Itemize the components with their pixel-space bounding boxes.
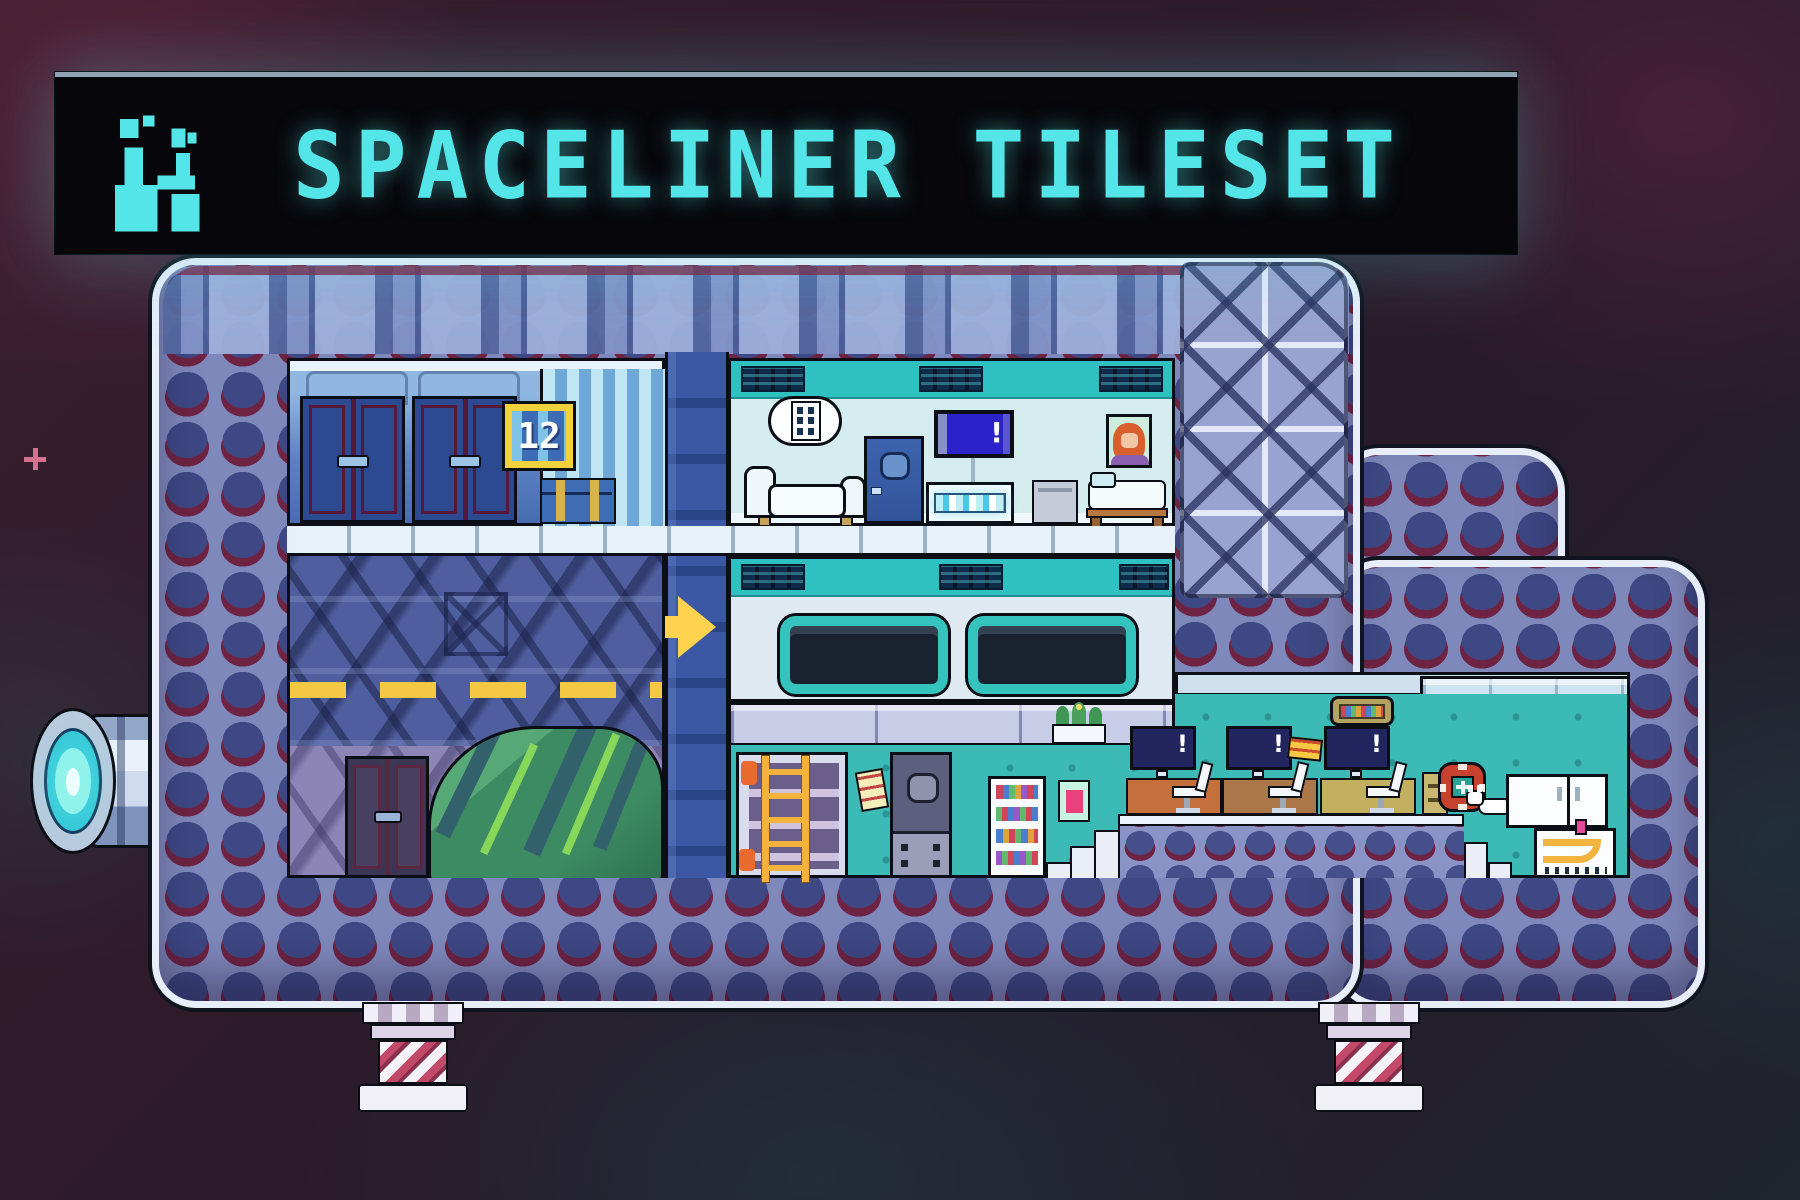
bed-pillow: [1090, 472, 1116, 488]
x-plate: [444, 592, 508, 656]
pixel-factory-rocket-icon: [101, 96, 251, 236]
corridor-window: [968, 616, 1136, 694]
landing-leg: [1308, 1002, 1430, 1116]
monitor: !: [1130, 726, 1196, 770]
hull-top-bracket-band: [163, 266, 1349, 354]
cargo-door-latch: [374, 811, 402, 823]
ceiling-vent: [741, 366, 805, 392]
drink-shelf: [926, 482, 1014, 524]
tv-screen: !: [934, 410, 1014, 458]
raised-platform-edge: [1118, 814, 1464, 826]
fridge: [1506, 774, 1608, 828]
monitor: !: [1324, 726, 1390, 770]
sparkle-plus: [24, 448, 46, 470]
monitor-alert-text: !: [1273, 730, 1284, 758]
title-banner: SPACELINER TILESET: [55, 72, 1517, 254]
couch: [744, 466, 868, 524]
landing-leg: [352, 1002, 474, 1116]
leg-foot: [1314, 1084, 1424, 1112]
locker-handle: [449, 455, 481, 468]
ceiling-vent: [919, 366, 983, 392]
tv-mount: [971, 458, 975, 482]
poster: [1058, 780, 1090, 822]
platform-step: [1488, 862, 1512, 878]
tv-alert-text: !: [990, 416, 1003, 449]
door-number-sign: 12: [505, 404, 573, 468]
leg-spring-coil: [378, 1040, 448, 1084]
locker-doors: [412, 396, 517, 523]
workstation: !: [1222, 722, 1322, 815]
ceiling-vent: [1099, 366, 1163, 392]
storage-rack: [736, 752, 848, 878]
orange-pipe: [741, 761, 757, 785]
deck-floor-band: [287, 526, 1175, 556]
bed: [1086, 470, 1170, 524]
leg-foot: [358, 1084, 468, 1112]
yellow-pipe: [1543, 839, 1595, 846]
cargo-double-door: [345, 756, 429, 878]
locker-doors: [300, 396, 405, 523]
title-text: SPACELINER TILESET: [293, 112, 1405, 220]
workstation: !: [1126, 722, 1226, 815]
ceiling-vent: [939, 564, 1003, 590]
monitor: !: [1226, 726, 1292, 770]
portrait-face: [1121, 433, 1138, 448]
ladder: [761, 755, 809, 881]
stairs-step: [1094, 830, 1120, 878]
orange-pipe: [739, 849, 755, 871]
bookshelf: [988, 776, 1046, 878]
nightstand: [1032, 480, 1078, 524]
workshop-door: [890, 752, 952, 878]
tileset-promo-image: 12 !: [0, 0, 1800, 1200]
wall-bookshelf: [1330, 696, 1394, 726]
platform-step: [1464, 842, 1488, 878]
portrait-shirt: [1111, 455, 1149, 468]
corridor-window: [780, 616, 948, 694]
raised-platform: [1118, 826, 1464, 878]
portrait: [1106, 414, 1152, 468]
workstation: !: [1320, 722, 1420, 815]
engine-nozzle-core: [66, 768, 80, 796]
stairs-step: [1070, 846, 1096, 878]
porthole-window: [880, 452, 910, 480]
ticket: [1287, 736, 1323, 761]
porthole-window: [907, 773, 939, 803]
wall-control-lamp: [768, 396, 842, 446]
hazard-stripe: [290, 682, 662, 698]
locker-handle: [337, 455, 369, 468]
pink-valve: [1575, 819, 1587, 835]
door-handle: [871, 487, 882, 495]
ceiling-vent: [1119, 564, 1169, 590]
stairs-step: [1046, 862, 1072, 878]
cargo-trunk: [540, 478, 616, 524]
planter: [1050, 702, 1110, 748]
cargo-upper-wall: [287, 556, 665, 746]
monitor-alert-text: !: [1177, 730, 1188, 758]
monitor-alert-text: !: [1371, 730, 1382, 758]
washer-with-pipes: [1534, 828, 1616, 878]
x-brace-armor-tiles: [1180, 262, 1348, 598]
porthole-door: [864, 436, 924, 524]
ceiling-vent: [741, 564, 805, 590]
leg-spring-coil: [1334, 1040, 1404, 1084]
door-number-text: 12: [517, 416, 560, 457]
